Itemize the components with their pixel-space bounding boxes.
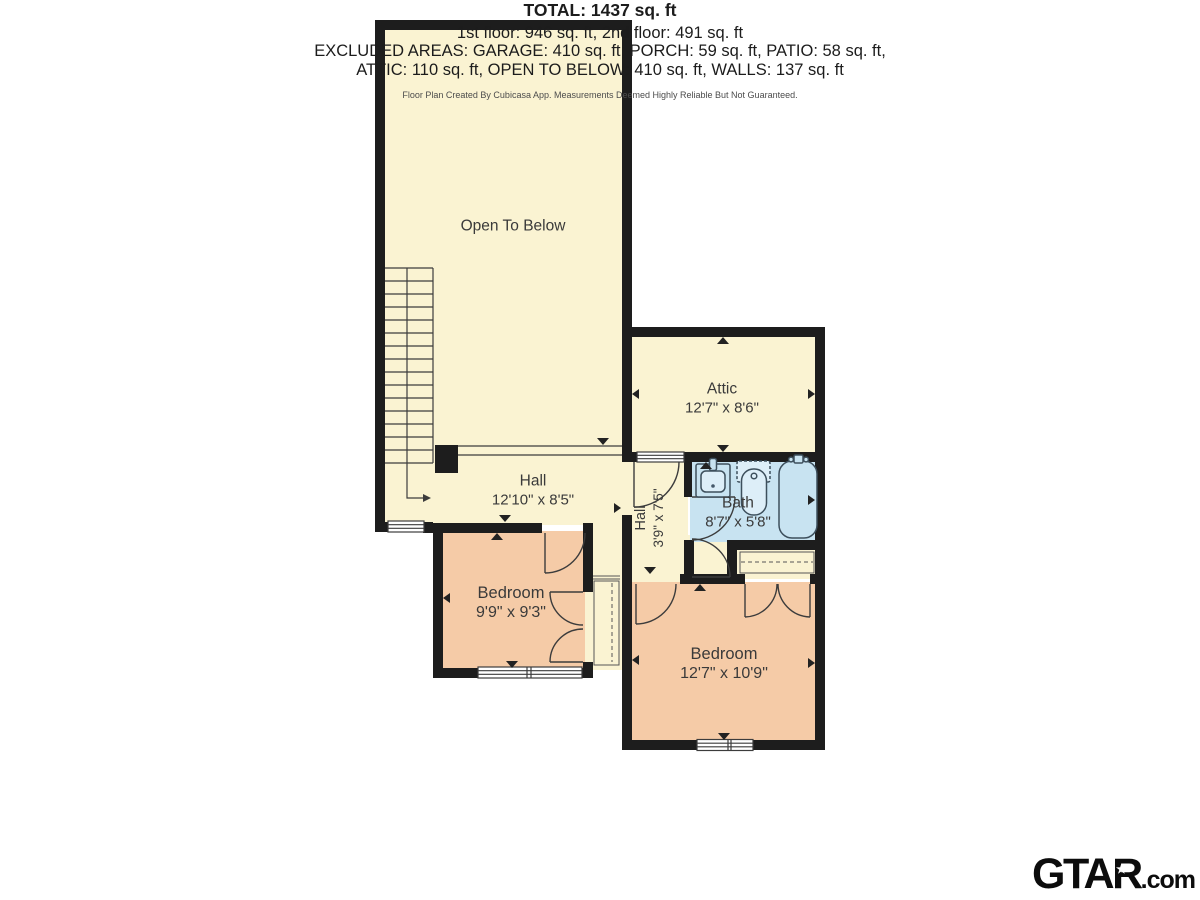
opening-attic-access <box>637 452 684 462</box>
bathtub-icon <box>779 455 817 538</box>
floor-plan-drawing <box>0 0 1200 900</box>
room-name: Attic <box>685 380 759 399</box>
summary-total: TOTAL: 1437 sq. ft <box>0 0 1200 21</box>
window-bedroom-left <box>478 667 582 678</box>
gtar-logo: GTAR ★ .com <box>1032 853 1195 896</box>
room-dims: 12'7" x 8'6" <box>685 399 759 417</box>
room-label-bedroom-left: Bedroom 9'9" x 9'3" <box>476 583 546 623</box>
gtar-logo-suffix: .com <box>1141 868 1195 893</box>
room-label-hall-main: Hall 12'10" x 8'5" <box>492 472 574 509</box>
room-name: Hall <box>492 472 574 491</box>
room-dims: 12'10" x 8'5" <box>492 491 574 509</box>
summary-floors: 1st floor: 946 sq. ft, 2nd floor: 491 sq… <box>0 24 1200 42</box>
room-name: Bath <box>705 494 771 513</box>
room-dims: 3'9" x 7'5" <box>651 488 667 547</box>
gtar-logo-text: GTAR ★ <box>1032 853 1141 896</box>
area-summary: TOTAL: 1437 sq. ft 1st floor: 946 sq. ft… <box>0 0 1200 100</box>
room-dims: 8'7" x 5'8" <box>705 513 771 531</box>
room-label-hall-small: Hall 3'9" x 7'5" <box>633 488 667 547</box>
room-name: Bedroom <box>476 583 546 603</box>
summary-disclaimer: Floor Plan Created By Cubicasa App. Meas… <box>0 90 1200 100</box>
texas-star-icon: ★ <box>1116 863 1127 875</box>
room-dims: 9'9" x 9'3" <box>476 603 546 623</box>
stair-landing-block <box>435 445 458 473</box>
summary-excluded-2: ATTIC: 110 sq. ft, OPEN TO BELOW: 410 sq… <box>0 61 1200 79</box>
room-dims: 12'7" x 10'9" <box>680 664 768 684</box>
room-label-bath: Bath 8'7" x 5'8" <box>705 494 771 531</box>
floor-plan-page: Open To Below Hall 12'10" x 8'5" Attic 1… <box>0 0 1200 900</box>
window-bedroom-right <box>697 740 753 751</box>
room-name: Bedroom <box>680 644 768 664</box>
room-label-open-to-below: Open To Below <box>461 218 566 237</box>
summary-excluded-1: EXCLUDED AREAS: GARAGE: 410 sq. ft, PORC… <box>0 42 1200 60</box>
room-name: Open To Below <box>461 218 566 237</box>
window-hall-bottom <box>388 521 424 532</box>
sink-icon <box>696 459 730 498</box>
room-label-attic: Attic 12'7" x 8'6" <box>685 380 759 417</box>
room-label-bedroom-right: Bedroom 12'7" x 10'9" <box>680 644 768 684</box>
room-name: Hall <box>633 488 651 547</box>
